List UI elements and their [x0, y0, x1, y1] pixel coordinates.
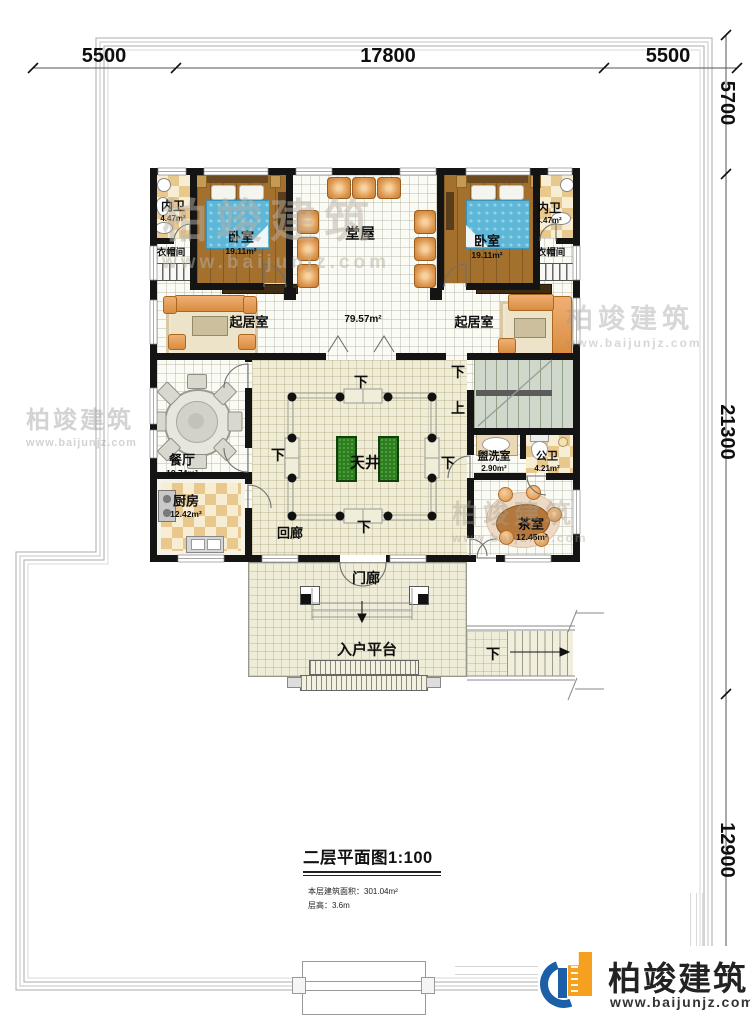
floor-height-note: 层高：3.6m — [308, 900, 441, 911]
room-label-porch: 门廊 — [352, 571, 380, 585]
room-label-bedroom-left: 卧室 — [228, 231, 254, 244]
room-area-dining: 19.74m² — [166, 469, 198, 478]
gate-post — [292, 977, 306, 994]
room-label-corridor: 回廊 — [277, 527, 303, 540]
room-label-washroom: 盥洗室 — [478, 452, 511, 463]
logo-decor-line — [702, 893, 703, 948]
room-area-washroom: 2.90m² — [481, 465, 506, 473]
room-label-cloak-left: 衣帽间 — [157, 248, 186, 258]
room-label-living-right: 起居室 — [454, 316, 493, 329]
room-label-hall: 堂屋 — [345, 227, 375, 242]
logo-brand-text: 柏竣建筑 — [608, 952, 748, 1000]
dim-right-lower: 12900 — [717, 822, 737, 878]
logo-decor-line — [455, 974, 543, 975]
title-underline — [303, 875, 441, 876]
room-label-toilet: 公卫 — [536, 452, 558, 463]
stair-down-label-courtyard-top: 下 — [354, 375, 368, 389]
room-area-bath-left: 4.47m² — [160, 215, 185, 223]
stair-down-label-stairwell: 下 — [451, 365, 465, 379]
dim-right-middle: 21300 — [717, 404, 737, 460]
room-area-toilet: 4.21m² — [534, 465, 559, 473]
logo-building-windows — [571, 966, 578, 994]
logo-decor-line — [455, 982, 543, 983]
stair-down-label-courtyard-bottom: 下 — [357, 520, 371, 534]
room-label-tearoom: 茶室 — [518, 518, 544, 531]
logo-decor-line — [455, 966, 543, 967]
dim-right-upper: 5700 — [717, 81, 737, 126]
room-area-open: 79.57m² — [344, 315, 381, 325]
floor-area-note: 本层建筑面积：301.04m² — [308, 886, 441, 897]
room-label-bath-left: 内卫 — [161, 200, 185, 212]
logo: 柏竣建筑 www.baijunjz.com — [538, 946, 750, 1022]
room-area-bedroom-right: 19.11m² — [471, 251, 502, 260]
logo-icon — [540, 948, 606, 1018]
room-label-bath-right: 内卫 — [537, 202, 561, 214]
room-area-bedroom-left: 19.11m² — [225, 247, 256, 256]
room-label-courtyard: 天井 — [350, 456, 380, 471]
logo-decor-line — [696, 893, 697, 948]
room-label-kitchen: 厨房 — [173, 495, 199, 508]
dim-top-center: 17800 — [360, 46, 416, 66]
dim-top-right: 5500 — [646, 46, 691, 66]
room-label-bedroom-right: 卧室 — [474, 235, 500, 248]
room-label-living-left: 起居室 — [229, 316, 268, 329]
logo-site-text: www.baijunjz.com — [610, 994, 750, 1010]
room-label-dining: 餐厅 — [169, 454, 195, 467]
room-area-bath-right: 4.47m² — [536, 217, 561, 225]
room-label-platform: 入户平台 — [337, 643, 397, 658]
stair-down-label-courtyard-right: 下 — [441, 456, 455, 470]
room-area-tearoom: 12.45m² — [516, 533, 548, 542]
title-block: 二层平面图1:100 本层建筑面积：301.04m² 层高：3.6m — [303, 844, 441, 911]
floorplan-sheet: 5500 17800 5500 5700 21300 12900 内卫 4.47… — [0, 0, 750, 1025]
gate-post — [421, 977, 435, 994]
stair-down-label-exterior: 下 — [486, 647, 500, 661]
stair-down-label-courtyard-left: 下 — [271, 448, 285, 462]
room-area-kitchen: 12.42m² — [170, 510, 202, 519]
logo-decor-line — [690, 893, 691, 948]
site-gate-bar — [302, 981, 424, 991]
room-label-cloak-right: 衣帽间 — [537, 248, 566, 258]
plan-title: 二层平面图1:100 — [303, 844, 441, 868]
title-underline — [303, 871, 441, 873]
logo-building-blue — [558, 968, 567, 998]
main-stair-details — [476, 360, 552, 426]
stair-up-label-stairwell: 上 — [451, 401, 465, 415]
dim-top-left: 5500 — [82, 46, 127, 66]
